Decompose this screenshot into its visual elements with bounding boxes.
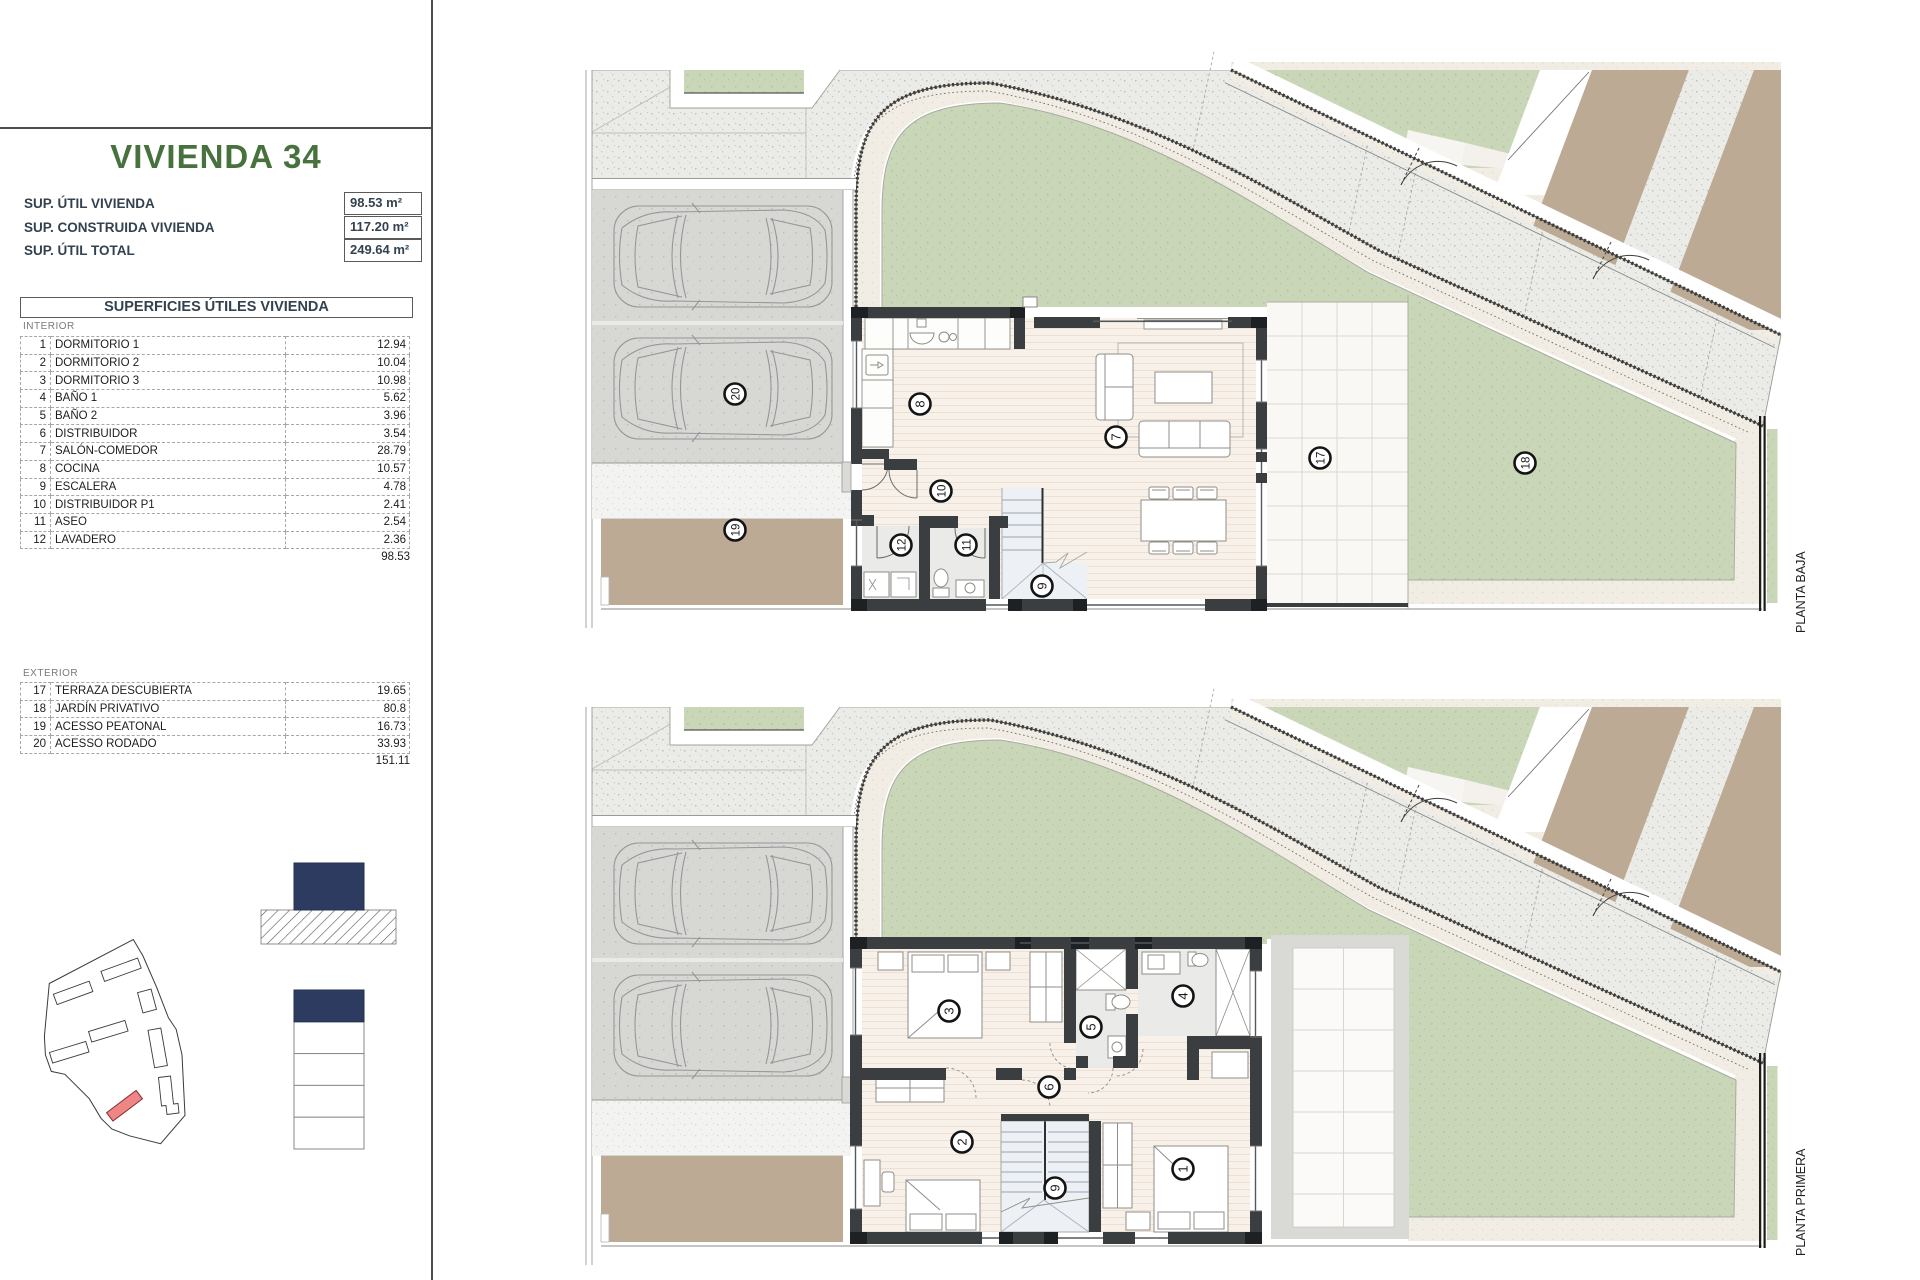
svg-text:3: 3 xyxy=(942,1007,957,1014)
svg-text:PLANTA PRIMERA: PLANTA PRIMERA xyxy=(1794,1148,1808,1256)
svg-text:6: 6 xyxy=(1042,1083,1057,1090)
svg-text:19: 19 xyxy=(731,524,743,537)
svg-text:5: 5 xyxy=(1084,1023,1099,1030)
svg-text:20: 20 xyxy=(731,388,743,401)
svg-text:PLANTA BAJA: PLANTA BAJA xyxy=(1794,551,1808,633)
svg-text:4: 4 xyxy=(1176,992,1191,999)
svg-text:9: 9 xyxy=(1035,582,1050,589)
svg-text:18: 18 xyxy=(1521,457,1533,470)
svg-text:10: 10 xyxy=(937,485,949,498)
svg-text:11: 11 xyxy=(962,539,974,551)
svg-text:17: 17 xyxy=(1316,452,1328,465)
svg-text:8: 8 xyxy=(913,400,928,407)
svg-text:9: 9 xyxy=(1048,1184,1063,1191)
svg-text:12: 12 xyxy=(897,539,909,552)
svg-text:1: 1 xyxy=(1176,1165,1191,1172)
svg-text:7: 7 xyxy=(1109,433,1124,440)
svg-text:2: 2 xyxy=(955,1138,970,1145)
